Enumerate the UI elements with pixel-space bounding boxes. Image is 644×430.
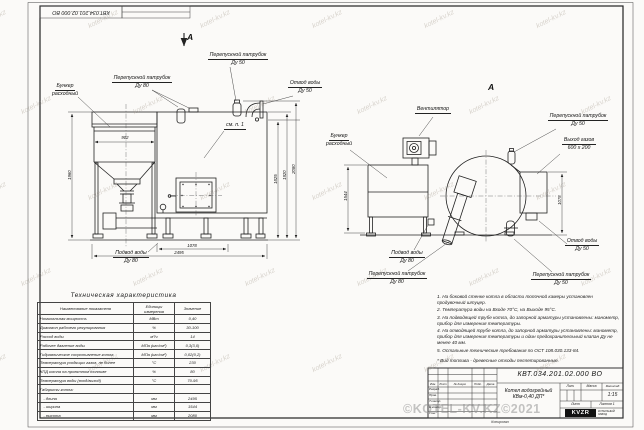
- callout-fan: Вентилятор: [407, 106, 459, 114]
- callout-bypass-pipe-80-front: Перепускной патрубокДу 80: [103, 75, 181, 90]
- watermark-text: kotel-kv.kz: [535, 181, 567, 202]
- tb-col-date: Дата: [484, 383, 497, 386]
- watermark-text: kotel-kv.kz: [244, 267, 276, 288]
- tb-row-checked: Пров.: [429, 394, 447, 397]
- section-marker-letter: А: [187, 32, 193, 42]
- callout-hopper-side: Бункеррасходный: [316, 133, 362, 148]
- watermark-text: kotel-kv.kz: [0, 181, 7, 202]
- tech-table-row: - длинамм2495: [38, 394, 211, 403]
- callout-see-note: см. п. 1: [218, 122, 252, 130]
- note-item: 5. Остальные технические требования по О…: [437, 348, 622, 354]
- note-item: 1. На боковой стенке котла в области топ…: [437, 294, 622, 306]
- title-block-sheet: Лист: [560, 403, 591, 407]
- watermark-text: kotel-kv.kz: [244, 95, 276, 116]
- drawing-sheet: kotel-kv.kzkotel-kv.kzkotel-kv.kzkotel-k…: [0, 0, 644, 430]
- tb-row-ncontrol: Н.контр.: [429, 406, 447, 409]
- dim-depth: 1544: [344, 185, 348, 207]
- watermark-text: kotel-kv.kz: [423, 181, 455, 202]
- watermark-text: kotel-kv.kz: [356, 95, 388, 116]
- tech-table-row: Диапазон рабочего регулирования%30-100: [38, 323, 211, 332]
- callout-bypass-pipe-50-bottom-side: Перепускной патрубокДу 50: [520, 272, 602, 287]
- dim-hopper-width: 902: [109, 136, 141, 140]
- watermark-text: kotel-kv.kz: [423, 9, 455, 30]
- watermark-text: kotel-kv.kz: [132, 267, 164, 288]
- watermark-text: kotel-kv.kz: [311, 9, 343, 30]
- title-block-scale-header: Масштаб: [602, 385, 623, 388]
- callout-water-inlet-front: Подвод водыДу 80: [104, 250, 158, 265]
- tb-col-doc: № докум.: [448, 383, 472, 386]
- manufacturer-name: КОТЕЛЬНЫЙ ЗАВОД: [598, 410, 615, 417]
- tech-table-row: Габариты котла:: [38, 385, 211, 394]
- callout-water-outlet-side: Отвод водыДу 50: [556, 238, 608, 253]
- view-a-letter: А: [488, 82, 494, 92]
- tb-col-sign: Подп.: [472, 383, 484, 386]
- tech-characteristics-table: Техническая характеристика Наименование …: [37, 292, 210, 421]
- dim-length-total: 2495: [162, 251, 196, 255]
- title-block-lit-header: Лит.: [560, 385, 581, 389]
- tb-col-list: Лист: [438, 383, 448, 386]
- watermark-text: kotel-kv.kz: [199, 181, 231, 202]
- tech-table-header-row: Наименование показателя Единицы измерени…: [38, 303, 211, 315]
- tb-row-developed: Разраб.: [429, 388, 447, 391]
- tech-table-row: - ширинамм1544: [38, 402, 211, 411]
- tb-col-izm: Изм.: [428, 383, 438, 386]
- title-block-scale-value: 1:15: [602, 393, 623, 399]
- note-item: 2. Температура воды на Входе 70°С, на Вы…: [437, 307, 622, 313]
- corner-stamp-docnumber: КВТ.034.201.02.000 ВО: [40, 5, 122, 18]
- tech-table-row: Гидравлическое сопротивление котлаМПа (к…: [38, 350, 211, 359]
- callout-hopper-front: Бункеррасходный: [42, 83, 88, 98]
- manufacturer-logo: KVZR: [565, 409, 596, 417]
- tech-table-row: Температура уходящих газов, не более°С23…: [38, 358, 211, 367]
- watermark-text: kotel-kv.kz: [311, 181, 343, 202]
- dim-gas-outlet-height: 1078: [558, 189, 562, 211]
- title-block-product-name: Котел водогрейный КВм-0,40 ДП*: [498, 389, 559, 401]
- title-block-mass-header: Масса: [581, 385, 602, 389]
- watermark-text: kotel-kv.kz: [87, 181, 119, 202]
- tb-row-tcontrol: Т.контр.: [429, 400, 447, 403]
- tb-row-approved: Утв.: [429, 412, 447, 415]
- technical-notes: 1. На боковой стенке котла в области топ…: [437, 294, 622, 366]
- tech-table-row: Температура воды (вход/выход)°С70-95: [38, 376, 211, 385]
- callout-bypass-pipe-50-front: Перепускной патрубокДу 50: [199, 52, 277, 67]
- callout-bypass-pipe-50-top-side: Перепускной патрубокДу 50: [538, 113, 618, 128]
- note-fuel-type: * Вид топлива - древесные отходы пеллети…: [437, 358, 622, 364]
- note-item: 3. На подводящей трубе котла, до запорно…: [437, 315, 622, 327]
- tech-table-row: - высотамм2080: [38, 411, 211, 420]
- watermark-text: kotel-kv.kz: [199, 9, 231, 30]
- dim-height-1: 1825: [274, 168, 278, 190]
- tech-table-title: Техническая характеристика: [37, 292, 210, 299]
- watermark-text: kotel-kv.kz: [0, 9, 7, 30]
- callout-water-inlet-side: Подвод водыДу 80: [380, 250, 434, 265]
- watermark-text: kotel-kv.kz: [20, 267, 52, 288]
- watermark-text: kotel-kv.kz: [311, 353, 343, 374]
- note-item: 4. На отводящей трубе котла, до запорной…: [437, 328, 622, 347]
- callout-water-outlet-front: Отвод водыДу 50: [282, 80, 328, 95]
- dim-height-2: 1920: [283, 164, 287, 186]
- watermark-text: kotel-kv.kz: [0, 353, 7, 374]
- tech-table-row: Расход водым³/ч14: [38, 332, 211, 341]
- dim-height-left: 1960: [68, 164, 72, 186]
- tech-table-row: Рабочее давление водыМПа (кгс/см²)0,3(3,…: [38, 341, 211, 350]
- watermark-text: kotel-kv.kz: [535, 9, 567, 30]
- watermark-text: kotel-kv.kz: [20, 95, 52, 116]
- watermark-text: kotel-kv.kz: [468, 267, 500, 288]
- tech-table-row: КПД котла на проектном топливе%80: [38, 367, 211, 376]
- title-block-doc-number: КВТ.034.201.02.000 ВО: [498, 371, 622, 379]
- dim-length-1: 1078: [176, 244, 208, 248]
- callout-bypass-pipe-80-side: Перепускной патрубокДу 80: [356, 271, 438, 286]
- watermark-text: kotel-kv.kz: [468, 95, 500, 116]
- tech-table-row: Номинальная мощностьМВт0,40: [38, 315, 211, 324]
- callout-gas-outlet: Выход газов600 х 200: [550, 137, 608, 152]
- copied-by-label: Копировал: [470, 420, 530, 424]
- title-block-sheets: Листов 1: [591, 403, 623, 407]
- dim-height-3: 2080: [292, 158, 296, 180]
- watermark-text: kotel-kv.kz: [132, 95, 164, 116]
